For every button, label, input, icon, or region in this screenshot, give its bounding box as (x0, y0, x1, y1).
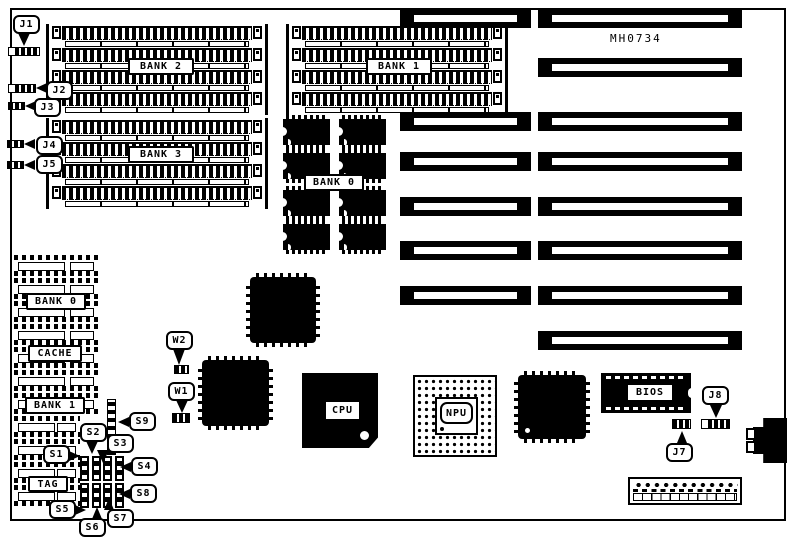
bank0-dip-label: BANK 0 (304, 174, 364, 191)
bank2-label: BANK 2 (128, 58, 194, 75)
simm-socket-row (302, 26, 492, 47)
callout-s1: S1 (43, 445, 70, 464)
simm-rail (254, 118, 268, 209)
simm-latch (493, 26, 502, 39)
isa-slot-long (538, 112, 742, 131)
leader-arrow-w1 (176, 400, 188, 413)
callout-j1: J1 (13, 15, 40, 34)
npu-socket: NPU (413, 375, 497, 457)
leader-arrow-s5 (75, 505, 86, 515)
isa-slot-long (538, 152, 742, 171)
isa-slot-long (538, 286, 742, 305)
dram-dip-chip (283, 224, 330, 250)
simm-socket-row (62, 164, 252, 185)
leader-arrow-j4 (24, 139, 35, 149)
dram-dip-chip (339, 190, 386, 216)
bios-label: BIOS (627, 384, 673, 401)
leader-arrow-s9 (118, 417, 129, 427)
simm-rail (286, 24, 300, 115)
jumper-w2 (174, 365, 189, 374)
qfp-chipset-chip (518, 375, 586, 439)
bank0-sram-label: BANK 0 (26, 293, 86, 310)
keyboard-connector-tab (746, 441, 756, 453)
isa-slot-long (538, 197, 742, 216)
bios-chip: BIOS (601, 373, 691, 413)
simm-latch (253, 26, 262, 39)
leader-arrow-j8 (710, 405, 722, 418)
npu-socket-center: NPU (435, 397, 478, 435)
dram-dip-chip (283, 119, 330, 145)
simm-rail (254, 24, 268, 115)
callout-s6: S6 (79, 518, 106, 537)
sram-chip (14, 324, 98, 345)
simm-latch (253, 186, 262, 199)
isa-slot-long (538, 331, 742, 350)
simm-latch (253, 120, 262, 133)
power-connector (628, 477, 742, 505)
cpu-chip: CPU (302, 373, 378, 448)
simm-latch (253, 48, 262, 61)
power-connector-terminals (633, 493, 737, 501)
dip-switch (80, 456, 89, 481)
npu-label: NPU (440, 402, 473, 424)
power-connector-slots (633, 489, 737, 492)
motherboard-layout-diagram: BANK 2 BANK 3 BANK 1 J1 J2 J3 (0, 0, 791, 545)
simm-latch (292, 48, 301, 61)
cpu-label: CPU (326, 402, 359, 419)
jumper-j7 (672, 419, 691, 429)
simm-latch (253, 142, 262, 155)
callout-s2: S2 (80, 423, 107, 442)
simm-socket-row (62, 92, 252, 113)
callout-w1: W1 (168, 382, 195, 401)
simm-latch (253, 92, 262, 105)
isa-slot-short (400, 241, 531, 260)
callout-s3: S3 (107, 434, 134, 453)
isa-slot-long (538, 241, 742, 260)
sram-chip (14, 416, 80, 437)
jumper-j2 (8, 84, 36, 93)
simm-latch (292, 70, 301, 83)
jumper-j5 (7, 161, 24, 169)
qfp-chipset-chip (250, 277, 316, 343)
sram-chip (14, 370, 98, 391)
simm-latch (292, 92, 301, 105)
jumper-j1 (8, 47, 40, 56)
bank1-sram-label: BANK 1 (25, 397, 85, 414)
callout-s8: S8 (130, 484, 157, 503)
dip-switch (92, 483, 101, 508)
cpu-pin1-dot (360, 431, 369, 440)
dram-dip-chip (283, 190, 330, 216)
jumper-j4 (7, 140, 24, 148)
callout-j7: J7 (666, 443, 693, 462)
leader-arrow-j7 (677, 431, 687, 443)
board-model-silkscreen: MH0734 (610, 32, 662, 45)
callout-s7: S7 (107, 509, 134, 528)
bank3-label: BANK 3 (128, 146, 194, 163)
power-connector-pins (632, 480, 738, 488)
isa-slot-short (400, 112, 531, 131)
callout-j4: J4 (36, 136, 63, 155)
keyboard-connector-tab (746, 428, 756, 440)
jumper-w1 (172, 413, 190, 423)
callout-w2: W2 (166, 331, 193, 350)
bios-notch (688, 388, 692, 398)
simm-latch (52, 120, 61, 133)
simm-latch (292, 26, 301, 39)
isa-slot-short (400, 286, 531, 305)
callout-j3: J3 (34, 98, 61, 117)
simm-socket-row (62, 120, 252, 141)
dram-dip-chip (339, 224, 386, 250)
leader-arrow-j5 (24, 160, 35, 170)
tag-label: TAG (28, 476, 68, 492)
isa-slot-long (538, 58, 742, 77)
simm-latch (493, 92, 502, 105)
simm-latch (52, 186, 61, 199)
sram-chip (14, 255, 98, 276)
leader-arrow-j1 (18, 33, 30, 46)
jumper-j8 (701, 419, 730, 429)
bank1-simm-label: BANK 1 (366, 58, 432, 75)
callout-s5: S5 (49, 500, 76, 519)
simm-latch (253, 164, 262, 177)
cache-label: CACHE (28, 345, 82, 362)
simm-latch (493, 70, 502, 83)
callout-s9: S9 (129, 412, 156, 431)
dram-dip-chip (339, 119, 386, 145)
isa-slot-short (400, 197, 531, 216)
callout-j5: J5 (36, 155, 63, 174)
isa-slot-long (538, 9, 742, 28)
jumper-j3 (8, 102, 25, 110)
simm-socket-row (62, 26, 252, 47)
simm-latch (253, 70, 262, 83)
leader-arrow-s1 (69, 451, 80, 461)
callout-s4: S4 (131, 457, 158, 476)
leader-arrow-s4 (120, 462, 131, 472)
simm-latch (52, 48, 61, 61)
simm-latch (493, 48, 502, 61)
callout-j8: J8 (702, 386, 729, 405)
leader-arrow-w2 (173, 349, 185, 365)
leader-arrow-s3 (97, 450, 109, 463)
simm-socket-row (302, 92, 492, 113)
simm-socket-row (62, 186, 252, 207)
simm-rail (494, 24, 508, 115)
simm-latch (52, 26, 61, 39)
leader-arrow-s8 (119, 489, 130, 499)
qfp-chipset-chip (202, 360, 269, 426)
isa-slot-short (400, 152, 531, 171)
